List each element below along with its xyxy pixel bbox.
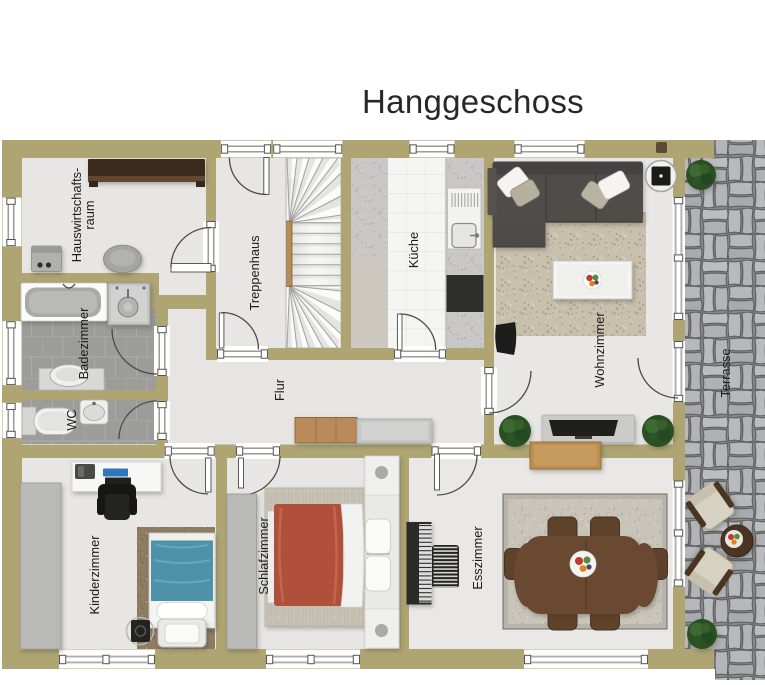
svg-text:WC: WC	[64, 409, 79, 430]
svg-text:Terrasse: Terrasse	[718, 348, 733, 397]
svg-text:Küche: Küche	[406, 232, 421, 268]
svg-text:Schlafzimmer: Schlafzimmer	[256, 517, 271, 595]
svg-text:Kinderzimmer: Kinderzimmer	[87, 535, 102, 615]
svg-text:Badezimmer: Badezimmer	[76, 307, 91, 380]
svg-text:Wohnzimmer: Wohnzimmer	[592, 312, 607, 388]
svg-text:raum: raum	[82, 200, 97, 229]
svg-text:Hanggeschoss: Hanggeschoss	[362, 83, 584, 120]
svg-text:Flur: Flur	[272, 378, 287, 401]
svg-text:Esszimmer: Esszimmer	[470, 526, 485, 590]
svg-text:Treppenhaus: Treppenhaus	[247, 236, 262, 311]
